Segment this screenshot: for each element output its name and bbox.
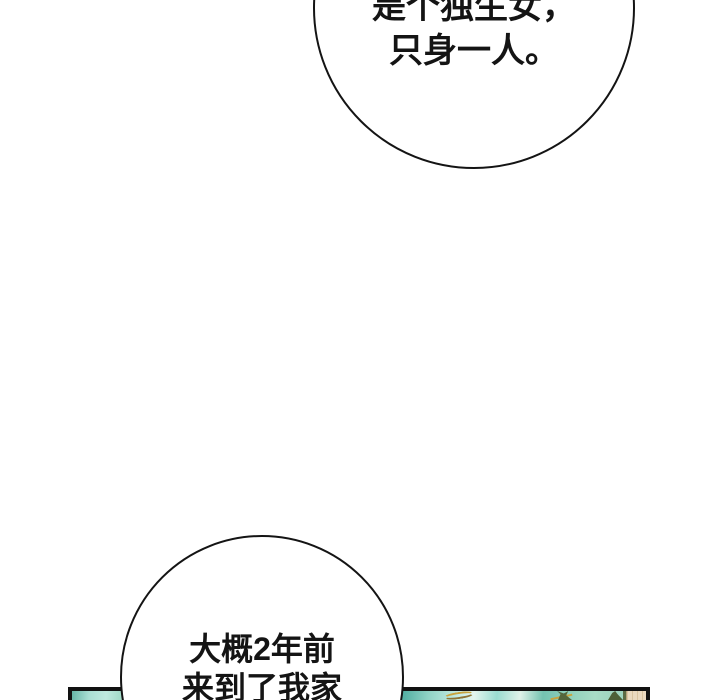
speech-text-line: 来到了我家 <box>122 669 402 700</box>
panel-art-tree-silhouette-2 <box>608 691 623 700</box>
speech-text-line: 大概2年前 <box>122 630 402 669</box>
speech-text-line: 只身一人。 <box>315 29 633 73</box>
comic-page: 是个独生女， 只身一人。 大概2年前 来到了我家 <box>0 0 720 700</box>
panel-art-door-strip <box>623 691 646 700</box>
panel-art-gold-squiggle <box>444 691 475 700</box>
speech-bubble-top: 是个独生女， 只身一人。 <box>313 0 635 169</box>
speech-bubble-top-text: 是个独生女， 只身一人。 <box>315 0 633 73</box>
speech-bubble-bottom: 大概2年前 来到了我家 <box>120 535 404 700</box>
speech-bubble-bottom-text: 大概2年前 来到了我家 <box>122 630 402 700</box>
speech-text-line: 是个独生女， <box>315 0 633 29</box>
